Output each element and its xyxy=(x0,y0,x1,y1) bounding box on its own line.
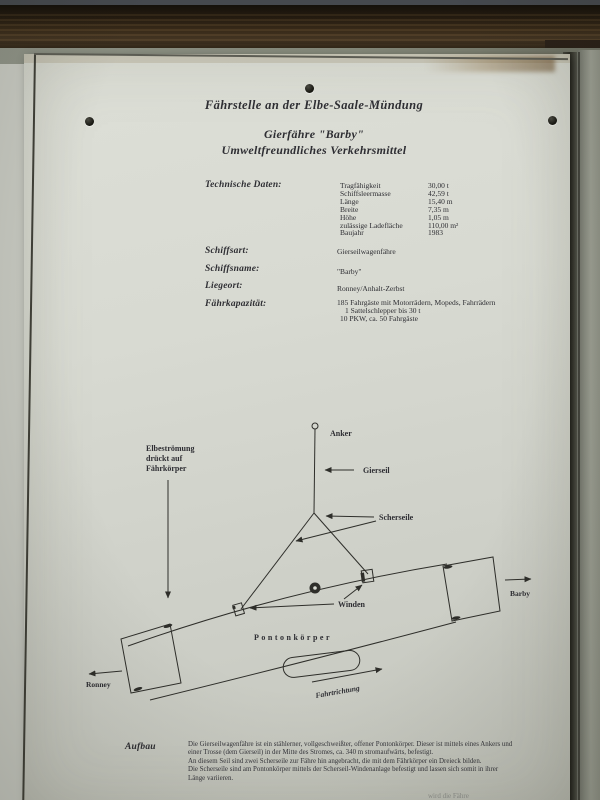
aufbau-line: Länge variieren. xyxy=(188,775,548,783)
right-strip-edge xyxy=(578,52,580,800)
field-value-schiffsart: Gierseilwagenfähre xyxy=(337,248,396,256)
diagram-arrows xyxy=(89,470,531,682)
aufbau-text: Die Gierseilwagenfähre ist ein stählerne… xyxy=(188,741,548,783)
table-row: Baujahr 1983 xyxy=(340,229,520,237)
label-scherseile: Scherseile xyxy=(379,513,414,522)
pulley-center xyxy=(313,586,317,590)
capacity-line: 10 PKW, ca. 50 Fahrgäste xyxy=(337,315,495,323)
sign-subtitle-2: Umweltfreundliches Verkehrsmittel xyxy=(58,143,570,158)
cutoff-text-fragment: wird die Fähre xyxy=(428,792,469,800)
sign-title: Fährstelle an der Elbe-Saale-Mündung xyxy=(58,98,570,113)
sign-subtitle-1: Gierfähre "Barby" xyxy=(58,127,570,142)
label-fahrtrichtung: Fahrtrichtung xyxy=(315,683,361,700)
aufbau-label: Aufbau xyxy=(125,742,156,752)
scherseil-left xyxy=(241,513,314,609)
screw-icon xyxy=(305,84,314,93)
tech-value: 1983 xyxy=(428,229,443,237)
label-barby: Barby xyxy=(510,589,530,598)
anchor-symbol xyxy=(312,423,318,429)
field-value-schiffsname: "Barby" xyxy=(337,268,361,276)
right-wall-strip xyxy=(577,50,600,800)
label-gierseil: Gierseil xyxy=(363,466,390,475)
wood-grain xyxy=(0,14,600,44)
label-anker: Anker xyxy=(330,429,352,438)
hinge-marks xyxy=(133,565,460,692)
winden-arrow-right xyxy=(344,585,362,599)
tech-name: Baujahr xyxy=(340,229,428,237)
label-stroemung-line3: Fährkörper xyxy=(146,464,187,473)
label-ronney: Ronney xyxy=(86,680,111,689)
gierseil-rope xyxy=(314,429,315,513)
sign-board: Fährstelle an der Elbe-Saale-Mündung Gie… xyxy=(24,54,570,800)
winden-arrow-left xyxy=(250,604,334,608)
label-winden: Winden xyxy=(338,600,366,609)
field-label-schiffsart: Schiffsart: xyxy=(205,246,249,256)
field-label-schiffsname: Schiffsname: xyxy=(205,264,259,274)
barby-arrow xyxy=(505,579,531,580)
technical-data-table: Tragfähigkeit 30,00 t Schiffsleermasse 4… xyxy=(340,182,520,237)
scherseil-right xyxy=(314,513,368,574)
field-label-liegeort: Liegeort: xyxy=(205,281,243,291)
field-value-liegeort: Ronney/Anhalt-Zerbst xyxy=(337,285,405,293)
label-stroemung-line2: drückt auf xyxy=(146,454,183,463)
aufbau-line: An diesem Seil sind zwei Scherseile zur … xyxy=(188,758,548,766)
aufbau-line: Die Gierseilwagenfähre ist ein stählerne… xyxy=(188,741,548,749)
sign-header: Fährstelle an der Elbe-Saale-Mündung Gie… xyxy=(58,98,570,158)
photo-of-ferry-sign: Fährstelle an der Elbe-Saale-Mündung Gie… xyxy=(0,0,600,800)
left-ramp xyxy=(121,624,181,693)
field-label-faehrkapazitaet: Fährkapazität: xyxy=(205,299,266,309)
technical-data-label: Technische Daten: xyxy=(205,180,282,190)
scherseile-arrow-upper xyxy=(326,516,374,517)
ferry-diagram: Anker Gierseil Scherseile Winden Pontonk… xyxy=(58,410,568,710)
aufbau-line: einer Trosse (dem Gierseil) in der Mitte… xyxy=(188,749,548,757)
ronney-arrow xyxy=(89,671,122,674)
label-pontonkoerper: Pontonkörper xyxy=(254,633,332,642)
label-stroemung-line1: Elbeströmung xyxy=(146,444,194,453)
field-value-faehrkapazitaet: 185 Fahrgäste mit Motorrädern, Mopeds, F… xyxy=(337,299,495,323)
aufbau-line: Die Scherseile sind am Pontonkörper mitt… xyxy=(188,766,548,774)
